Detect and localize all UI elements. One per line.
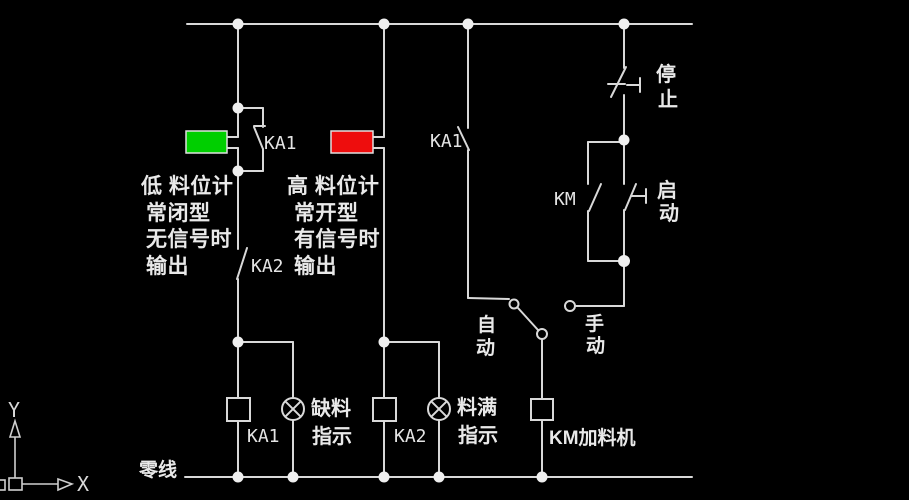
junction-node — [233, 472, 244, 483]
low-sensor-note-line: 输出 — [146, 254, 189, 278]
ka1-contact-blade — [254, 127, 263, 149]
km-contact-blade — [589, 184, 601, 211]
selector-blade — [518, 308, 538, 330]
auto-label-char: 自 — [477, 313, 496, 336]
ka1-contact-label: KA1 — [264, 133, 297, 154]
labels: 低 料位计 常闭型 无信号时 输出 高 料位计 常开型 有信号时 输出 KA1 … — [138, 62, 679, 481]
km-feeder-label: KM加料机 — [549, 426, 636, 449]
ka1-coil-label: KA1 — [247, 426, 280, 447]
ucs-edge-box — [0, 480, 5, 490]
ucs-icon: Y X — [0, 398, 89, 496]
manual-label-char: 手 — [585, 312, 604, 335]
ka1-contact-label: KA1 — [430, 131, 463, 152]
start-label-char: 动 — [659, 202, 679, 225]
lack-caption-line: 指示 — [312, 424, 352, 448]
selector-auto-terminal — [510, 300, 519, 309]
stop-label-char: 止 — [658, 88, 678, 111]
low-sensor-note-line: 常闭型 — [146, 201, 211, 225]
km-coil-box — [531, 399, 553, 420]
junction-node — [619, 19, 630, 30]
junction-node — [618, 255, 630, 267]
ka2-coil-label: KA2 — [394, 426, 427, 447]
junction-node — [233, 337, 244, 348]
junction-node — [434, 472, 445, 483]
auto-label-char: 动 — [476, 337, 495, 359]
full-caption-line: 料满 — [457, 395, 497, 419]
high-sensor-note-line: 有信号时 — [294, 227, 380, 251]
neutral-line-label: 零线 — [138, 458, 177, 481]
junction-node — [379, 472, 390, 483]
start-label-char: 启 — [657, 178, 677, 202]
control-branch — [588, 24, 646, 306]
ucs-x-label: X — [77, 472, 89, 496]
junction-nodes — [233, 19, 631, 483]
lack-caption-line: 缺料 — [311, 396, 351, 420]
ucs-y-label: Y — [8, 398, 20, 422]
junction-node — [233, 19, 244, 30]
junction-node — [288, 472, 299, 483]
ka2-coil-box — [373, 398, 396, 421]
junction-node — [537, 472, 548, 483]
low-sensor-note-line: 低 料位计 — [140, 174, 233, 198]
stop-button-blade — [611, 67, 626, 97]
ucs-x-arrowhead-icon — [58, 479, 72, 490]
high-sensor-note-line: 常开型 — [294, 201, 359, 225]
ucs-origin-box — [9, 478, 22, 490]
wire-segment — [468, 298, 509, 299]
circuit-schematic: Y X 低 料位计 常闭型 无信号时 输出 高 料位计 常开型 有信号时 输出 … — [0, 0, 909, 500]
manual-label-char: 动 — [586, 335, 605, 357]
junction-node — [233, 166, 244, 177]
cad-canvas: Y X 低 料位计 常闭型 无信号时 输出 高 料位计 常开型 有信号时 输出 … — [0, 0, 909, 500]
full-caption-line: 指示 — [458, 423, 498, 447]
low-sensor-note-line: 无信号时 — [146, 227, 232, 251]
high-sensor-note-line: 输出 — [294, 254, 337, 278]
ucs-y-arrowhead-icon — [10, 421, 20, 437]
junction-node — [619, 135, 630, 146]
junction-node — [233, 103, 244, 114]
high-sensor-note-line: 高 料位计 — [287, 174, 379, 198]
ka2-contact-label: KA2 — [251, 256, 284, 277]
ka1-coil-box — [227, 398, 250, 421]
junction-node — [463, 19, 474, 30]
km-contact-label: KM — [554, 189, 576, 210]
ka2-contact-blade — [237, 248, 247, 279]
high-level-sensor-box — [331, 131, 373, 153]
stop-label-char: 停 — [656, 62, 676, 86]
selector-pole-terminal — [537, 329, 547, 339]
junction-node — [379, 19, 390, 30]
junction-node — [379, 337, 390, 348]
selector-manual-terminal — [565, 301, 575, 311]
low-level-sensor-box — [186, 131, 227, 153]
